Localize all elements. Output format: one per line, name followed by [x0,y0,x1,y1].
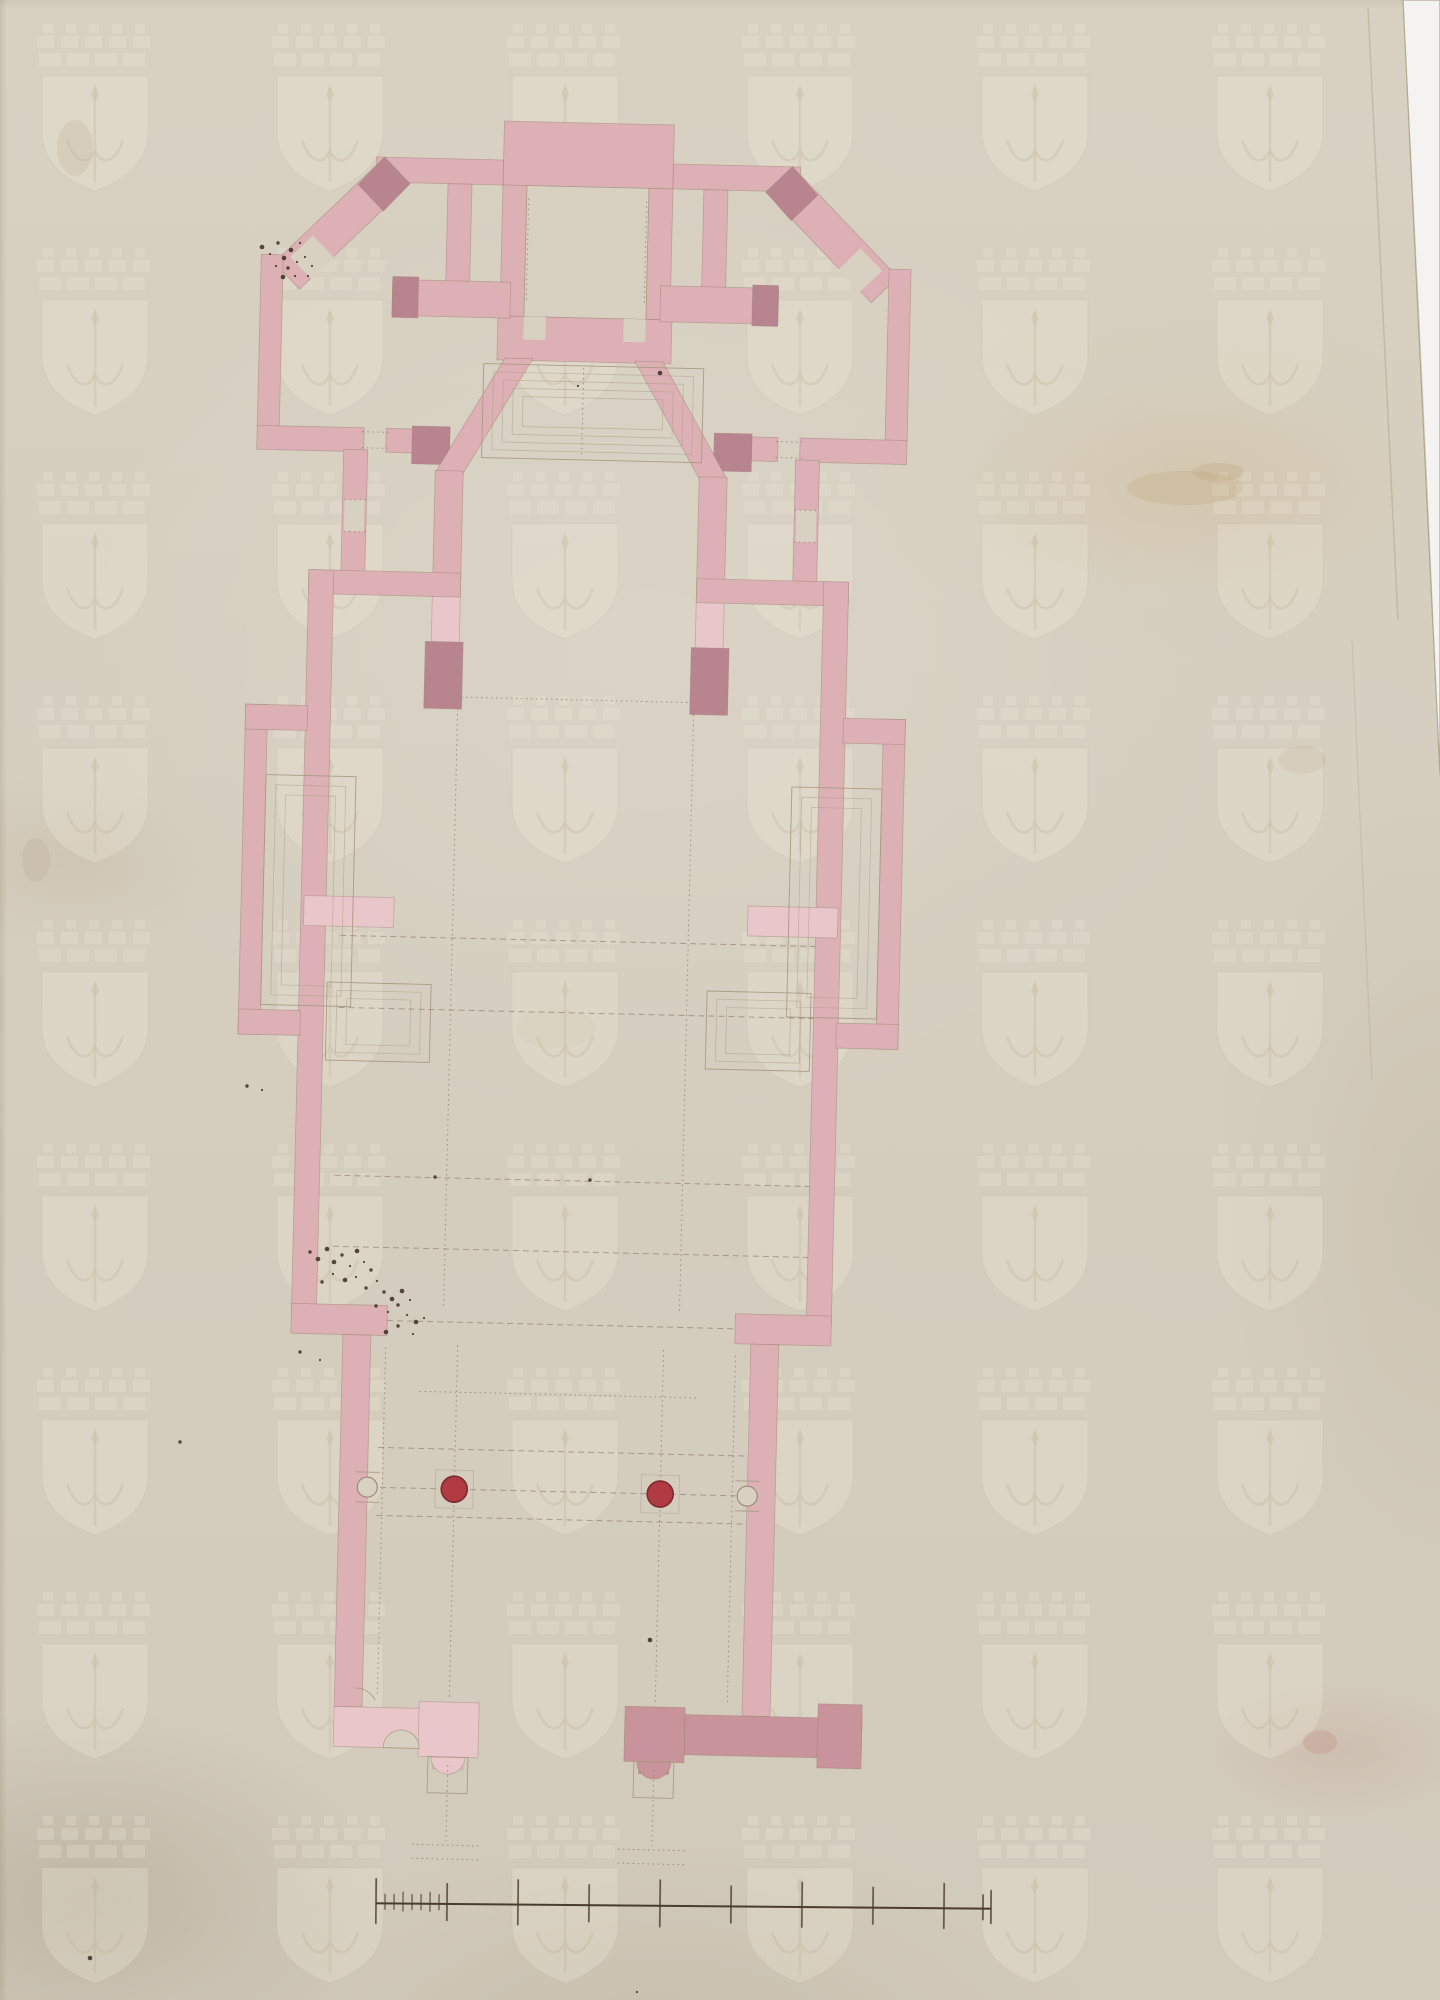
pilaster-block [752,285,779,327]
paper-edge-scan-background [1403,0,1440,775]
pilaster-block [690,648,730,716]
architectural-floor-plan-scan [0,0,1440,2000]
pilaster-block [424,641,464,709]
left-portal-pier [418,1701,479,1757]
pilaster-block [392,276,419,318]
left-portico-threshold [304,895,395,927]
right-portal-pier [624,1706,685,1762]
apse-inner-room [524,186,649,320]
right-portico-outer-wall [876,719,906,1049]
paper-crease [1368,8,1398,620]
left-portico-outer-wall [238,704,268,1034]
right-portico-threshold [747,906,838,938]
scanned-drawing-page [0,0,1440,2000]
apse-projection-top-wall [503,121,674,189]
west-wall-corner-block [817,1704,862,1769]
chancel-splay-left [435,356,533,474]
scale-bar [376,1877,991,1930]
paper-crease [1352,640,1372,1080]
